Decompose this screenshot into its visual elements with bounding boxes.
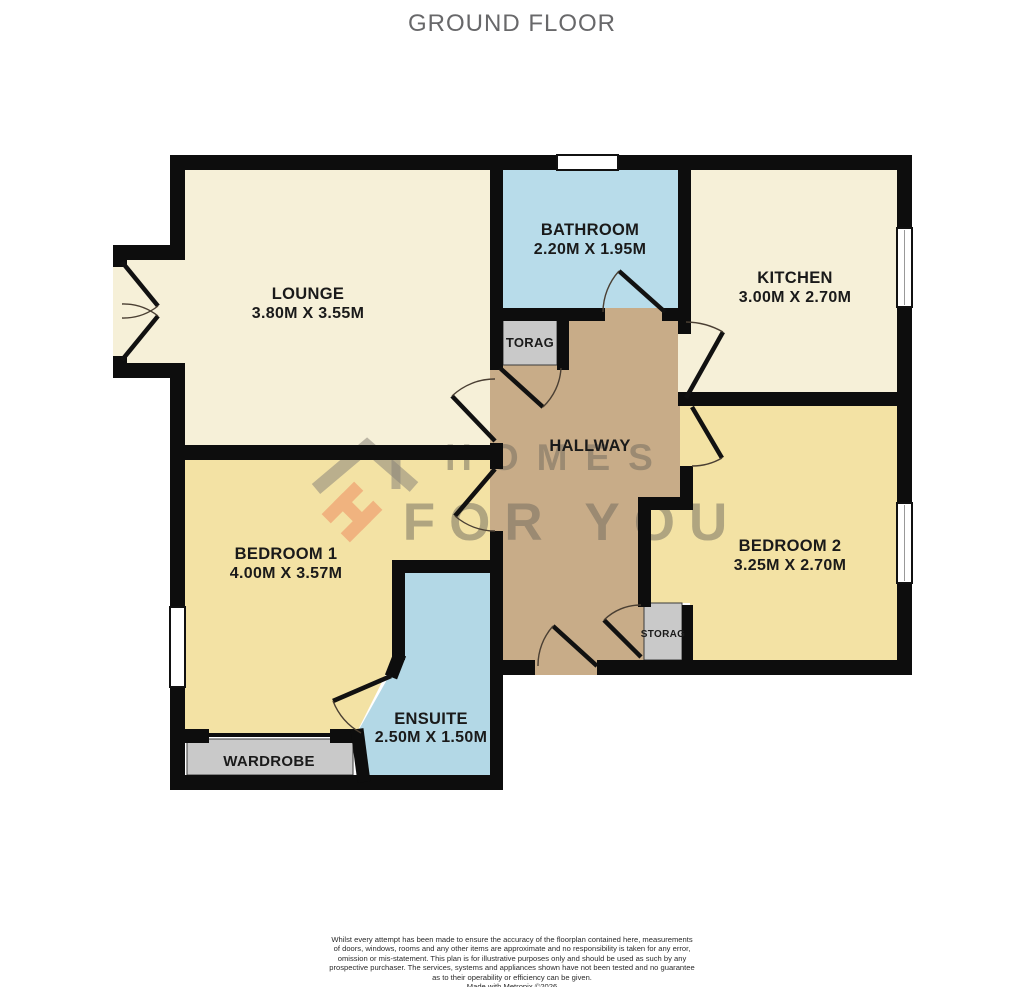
floorplan-svg: HOMES FOR YOU bbox=[0, 0, 1024, 987]
kitchen-doorway bbox=[678, 334, 691, 392]
bedroom2-label: BEDROOM 2 bbox=[739, 537, 842, 555]
floorplan-page: GROUND FLOOR bbox=[0, 0, 1024, 987]
bedroom1-label: BEDROOM 1 bbox=[235, 545, 338, 563]
disclaimer-line: omission or mis-statement. This plan is … bbox=[0, 954, 1024, 963]
disclaimer-text: Whilst every attempt has been made to en… bbox=[0, 935, 1024, 987]
disclaimer-line: prospective purchaser. The services, sys… bbox=[0, 963, 1024, 972]
metropix-credit: Made with Metropix ©2026 bbox=[0, 982, 1024, 987]
lounge-doorway bbox=[490, 370, 503, 443]
bedroom2-doorway bbox=[680, 406, 693, 466]
bathroom-label: BATHROOM bbox=[541, 221, 639, 239]
disclaimer-line: Whilst every attempt has been made to en… bbox=[0, 935, 1024, 944]
bathroom-dims: 2.20M X 1.95M bbox=[534, 241, 646, 258]
disclaimer-line: as to their operability or efficiency ca… bbox=[0, 973, 1024, 982]
kitchen-dims: 3.00M X 2.70M bbox=[739, 289, 851, 306]
bedroom1-dims: 4.00M X 3.57M bbox=[230, 565, 342, 582]
bedroom1-window bbox=[170, 607, 185, 687]
storage-top-label: TORAG bbox=[506, 335, 554, 350]
ensuite-label: ENSUITE bbox=[394, 710, 468, 728]
kitchen-label: KITCHEN bbox=[757, 269, 832, 287]
lounge-recess bbox=[127, 258, 185, 365]
disclaimer-line: of doors, windows, rooms and any other i… bbox=[0, 944, 1024, 953]
lounge-door-gap bbox=[113, 265, 127, 358]
lounge-label: LOUNGE bbox=[272, 285, 344, 303]
wardrobe-label: WARDROBE bbox=[223, 753, 315, 770]
bedroom2-dims: 3.25M X 2.70M bbox=[734, 557, 846, 574]
entrance-doorway bbox=[535, 660, 597, 675]
hallway-label: HALLWAY bbox=[549, 437, 630, 455]
storage-bottom-label: STORAG bbox=[641, 629, 685, 640]
lounge-dims: 3.80M X 3.55M bbox=[252, 305, 364, 322]
bathroom-room bbox=[503, 170, 678, 308]
ensuite-dims: 2.50M X 1.50M bbox=[375, 729, 487, 746]
bathroom-window bbox=[557, 155, 618, 170]
